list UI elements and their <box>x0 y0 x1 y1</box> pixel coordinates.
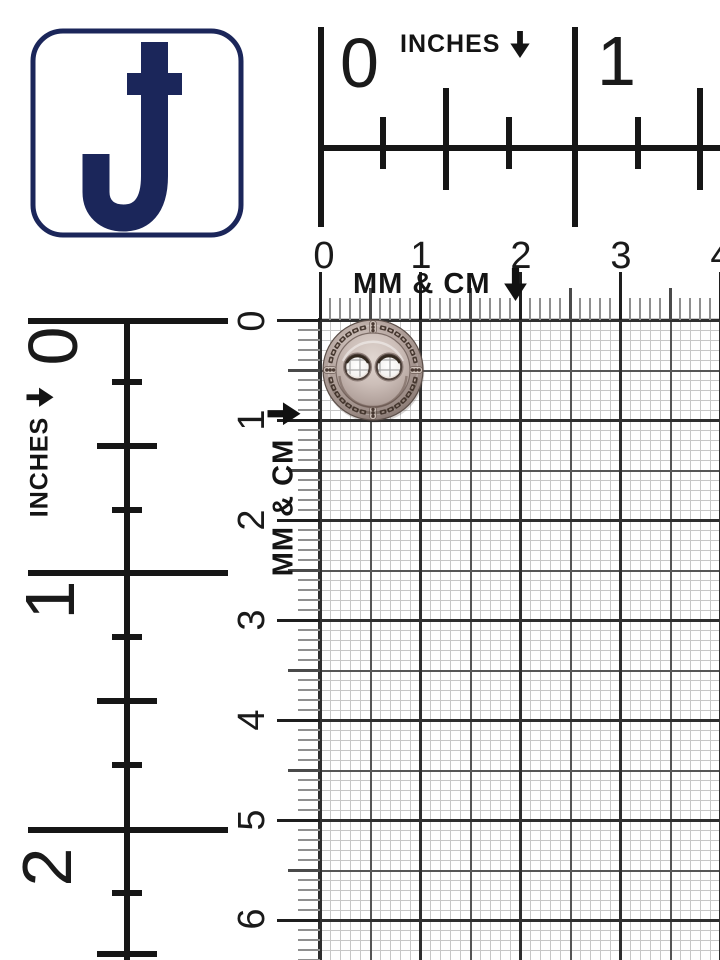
tick <box>298 439 320 441</box>
tick <box>298 489 320 491</box>
inches-label: INCHES <box>26 387 55 517</box>
tick <box>298 509 320 511</box>
cm-number: 0 <box>233 310 271 331</box>
ruler-baseline <box>318 145 720 151</box>
inches-label: INCHES <box>400 30 530 59</box>
half-tick <box>697 88 703 190</box>
tick <box>298 949 320 951</box>
tick <box>549 298 551 320</box>
tick <box>679 298 681 320</box>
tick <box>298 649 320 651</box>
tick <box>298 879 320 881</box>
tick <box>298 349 320 351</box>
tick <box>449 298 451 320</box>
tick <box>298 779 320 781</box>
tick <box>298 549 320 551</box>
quarter-tick <box>112 634 142 640</box>
tick <box>298 709 320 711</box>
cm-number: 4 <box>710 237 720 275</box>
quarter-tick <box>112 890 142 896</box>
tick <box>298 629 320 631</box>
tick <box>298 799 320 801</box>
tick <box>298 609 320 611</box>
inch-number: 0 <box>340 28 379 98</box>
tick <box>499 298 501 320</box>
tick <box>298 579 320 581</box>
tick <box>439 298 441 320</box>
down-arrow-icon <box>510 31 530 58</box>
tick <box>298 499 320 501</box>
tick <box>298 759 320 761</box>
tick <box>298 409 320 411</box>
tick <box>619 272 622 320</box>
tick <box>539 298 541 320</box>
tick <box>319 272 322 320</box>
cm-number: 3 <box>610 237 631 275</box>
tick <box>298 749 320 751</box>
tick <box>689 298 691 320</box>
tick <box>298 849 320 851</box>
tick <box>298 449 320 451</box>
tick <box>298 839 320 841</box>
cm-number: 4 <box>233 709 271 730</box>
tick <box>298 379 320 381</box>
mm-cm-label-text: MM & CM <box>353 268 490 301</box>
button-hole-right <box>375 353 403 381</box>
tick <box>288 869 320 872</box>
tick <box>489 298 491 320</box>
tick <box>298 559 320 561</box>
cm-number: 6 <box>233 908 271 929</box>
inch-number: 1 <box>597 26 636 96</box>
quarter-tick <box>112 507 142 513</box>
tick <box>298 479 320 481</box>
tick <box>479 298 481 320</box>
tick <box>277 919 320 922</box>
tick <box>298 589 320 591</box>
down-arrow-icon <box>27 387 54 407</box>
cm-number: 3 <box>233 609 271 630</box>
inch-number: 1 <box>15 581 85 620</box>
tick <box>298 529 320 531</box>
major-tick-2in <box>28 827 228 833</box>
tick <box>579 298 581 320</box>
tick <box>298 889 320 891</box>
tick <box>298 329 320 331</box>
tick <box>277 319 320 322</box>
tick <box>298 829 320 831</box>
tick <box>298 929 320 931</box>
mm-cm-label-text: MM & CM <box>268 439 301 576</box>
tick <box>298 599 320 601</box>
tick <box>609 298 611 320</box>
down-arrow-icon <box>268 402 301 425</box>
tick <box>429 298 431 320</box>
cm-number: 2 <box>233 509 271 530</box>
tick <box>298 789 320 791</box>
tick <box>298 429 320 431</box>
tick <box>298 639 320 641</box>
major-tick-0in <box>28 318 228 324</box>
tick <box>298 399 320 401</box>
tick <box>669 288 672 320</box>
mm-cm-label: MM & CM <box>268 402 301 576</box>
tick <box>649 298 651 320</box>
tick <box>298 699 320 701</box>
tick <box>599 298 601 320</box>
tick <box>298 729 320 731</box>
major-tick-0in <box>318 27 324 227</box>
half-tick <box>443 88 449 190</box>
button-hole-left <box>344 353 372 381</box>
tick <box>659 298 661 320</box>
tick <box>288 769 320 772</box>
tick <box>298 859 320 861</box>
tick <box>298 459 320 461</box>
cm-number: 0 <box>313 237 334 275</box>
tick <box>298 339 320 341</box>
tick <box>277 819 320 822</box>
tick <box>529 298 531 320</box>
half-tick <box>97 951 157 957</box>
major-tick-1in <box>572 27 578 227</box>
tick <box>589 298 591 320</box>
quarter-tick <box>380 117 386 169</box>
tick <box>639 298 641 320</box>
tick <box>298 679 320 681</box>
tick <box>277 619 320 622</box>
cm-number: 1 <box>233 409 271 430</box>
button-product <box>320 317 426 423</box>
brand-logo <box>30 28 244 238</box>
tick <box>298 739 320 741</box>
quarter-tick <box>635 117 641 169</box>
tick <box>629 298 631 320</box>
tick <box>298 539 320 541</box>
tick <box>298 689 320 691</box>
inch-number: 2 <box>12 848 82 887</box>
cm-number: 5 <box>233 809 271 830</box>
inches-label-text: INCHES <box>26 417 55 517</box>
tick <box>709 298 711 320</box>
inches-label-text: INCHES <box>400 30 500 59</box>
tick <box>459 298 461 320</box>
quarter-tick <box>112 379 142 385</box>
half-tick <box>97 698 157 704</box>
major-tick-1in <box>28 570 228 576</box>
j-with-cross-icon <box>30 28 244 238</box>
half-tick <box>97 443 157 449</box>
tick <box>288 369 320 372</box>
tick <box>298 659 320 661</box>
tick <box>298 359 320 361</box>
tick <box>699 298 701 320</box>
tick <box>277 719 320 722</box>
product-photo: 0 1 INCHES 0 1 2 3 4 MM & CM 0 1 2 3 4 5… <box>0 0 720 960</box>
down-arrow-icon <box>504 268 527 301</box>
tick <box>509 298 511 320</box>
tick <box>569 288 572 320</box>
tick <box>298 389 320 391</box>
tick <box>288 669 320 672</box>
mm-cm-label: MM & CM <box>353 268 527 301</box>
tick <box>559 298 561 320</box>
inch-number: 0 <box>18 327 88 366</box>
tick <box>298 809 320 811</box>
tick <box>298 909 320 911</box>
tick <box>298 899 320 901</box>
quarter-tick <box>112 762 142 768</box>
tick <box>298 939 320 941</box>
quarter-tick <box>506 117 512 169</box>
